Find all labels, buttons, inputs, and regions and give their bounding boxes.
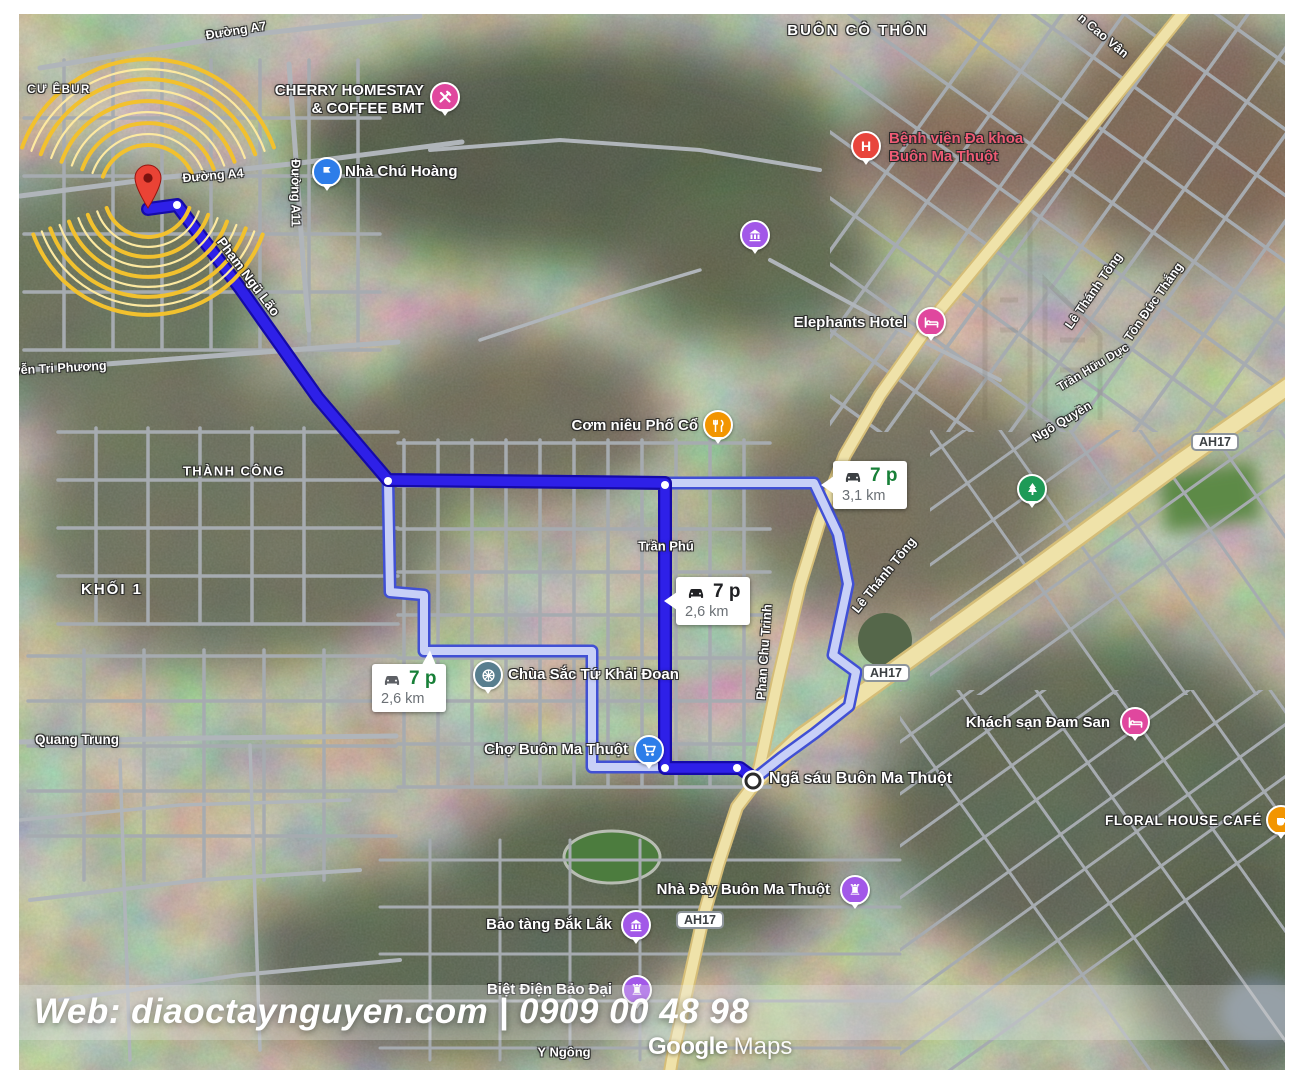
car-icon bbox=[685, 585, 707, 600]
poi-label-elephants-hotel[interactable]: Elephants Hotel bbox=[772, 314, 907, 332]
frame-left bbox=[0, 0, 19, 1084]
bed-icon bbox=[1128, 716, 1143, 729]
bed-icon bbox=[924, 316, 939, 329]
hospital-icon[interactable]: H bbox=[851, 131, 881, 161]
highway-badge-ah17-3: AH17 bbox=[676, 911, 724, 929]
hotel-bed-icon-elephants[interactable] bbox=[916, 307, 946, 337]
homestay-pin-icon[interactable] bbox=[430, 82, 460, 112]
road-label-y-ngong: Y Ngông bbox=[537, 1044, 590, 1059]
tree-icon bbox=[1026, 482, 1039, 496]
road-label-duong-a11: Đường A11 bbox=[288, 159, 303, 227]
market-cart-icon[interactable] bbox=[634, 735, 664, 765]
poi-label-benh-vien[interactable]: Bệnh viện Đa khoa Buôn Ma Thuột bbox=[889, 130, 1023, 165]
park-tree-icon[interactable] bbox=[1017, 474, 1047, 504]
pagoda-wheel-icon[interactable] bbox=[473, 660, 503, 690]
area-label-thanh-cong: THÀNH CÔNG bbox=[183, 463, 285, 478]
poi-label-cho-bmt[interactable]: Chợ Buôn Ma Thuột bbox=[470, 741, 628, 759]
poi-label-nha-day[interactable]: Nhà Đày Buôn Ma Thuột bbox=[630, 881, 830, 899]
poi-label-bao-tang[interactable]: Bảo tàng Đắk Lắk bbox=[452, 916, 612, 934]
car-icon bbox=[381, 672, 403, 687]
museum-icon-baotang[interactable] bbox=[621, 910, 651, 940]
frame-bottom bbox=[0, 1070, 1293, 1084]
route-bubble-center[interactable]: 7 p 2,6 km bbox=[676, 577, 750, 625]
road-label-quang-trung: Quang Trung bbox=[35, 732, 119, 748]
poi-label-nga-sau[interactable]: Ngã sáu Buôn Ma Thuột bbox=[769, 770, 952, 789]
watermark-text: Web: diaoctaynguyen.com | 0909 00 48 98 bbox=[34, 992, 749, 1032]
road-label-tran-phu: Trần Phú bbox=[638, 538, 694, 553]
hotel-bed-icon-damsan[interactable] bbox=[1120, 707, 1150, 737]
dharma-wheel-icon bbox=[481, 668, 496, 683]
poi-label-nha-chu-hoang[interactable]: Nhà Chú Hoàng bbox=[345, 163, 458, 181]
parking-icon[interactable] bbox=[312, 157, 342, 187]
prison-rook-icon[interactable]: ♜ bbox=[840, 875, 870, 905]
nga-sau-junction-dot[interactable] bbox=[745, 773, 762, 790]
route-bubble-left[interactable]: 7 p 2,6 km bbox=[372, 664, 446, 712]
route-bubble-right[interactable]: 7 p 3,1 km bbox=[833, 461, 907, 509]
poi-label-floral-house[interactable]: FLORAL HOUSE CAFÉ bbox=[1082, 813, 1262, 829]
area-label-cu-ebur: CƯ ÊBUR bbox=[27, 84, 90, 98]
bubble-pointer-up bbox=[423, 649, 441, 667]
museum-icon-unlabeled[interactable] bbox=[740, 220, 770, 250]
highway-badge-ah17-2: AH17 bbox=[862, 664, 910, 682]
map-screenshot: CƯ ÊBUR BUÔN CÔ THÔN THÀNH CÔNG KHỐI 1 Đ… bbox=[0, 0, 1293, 1084]
hammer-pick-icon bbox=[438, 90, 452, 104]
google-maps-logo[interactable]: GoogleMaps bbox=[648, 1033, 792, 1061]
poi-label-com-nieu[interactable]: Cơm niêu Phố Cổ bbox=[558, 417, 698, 435]
frame-top bbox=[0, 0, 1293, 14]
flag-icon bbox=[320, 165, 334, 179]
car-icon bbox=[842, 469, 864, 484]
highway-badge-ah17-1: AH17 bbox=[1191, 433, 1239, 451]
bubble-pointer-left bbox=[821, 476, 834, 494]
bubble-pointer-left bbox=[664, 592, 677, 610]
poi-label-dam-san[interactable]: Khách sạn Đam San bbox=[922, 714, 1110, 732]
area-label-buon-co-thon: BUÔN CÔ THÔN bbox=[787, 22, 929, 40]
museum-icon bbox=[748, 228, 762, 242]
restaurant-icon[interactable] bbox=[703, 410, 733, 440]
area-label-khoi-1: KHỐI 1 bbox=[81, 581, 143, 599]
poi-label-chua-sac-tu[interactable]: Chùa Sắc Tứ Khải Đoan bbox=[508, 666, 679, 684]
fork-knife-icon bbox=[712, 419, 725, 432]
poi-label-cherry-homestay[interactable]: CHERRY HOMESTAY & COFFEE BMT bbox=[252, 82, 424, 117]
museum-icon bbox=[629, 918, 643, 932]
shopping-cart-icon bbox=[642, 743, 657, 757]
frame-right bbox=[1285, 0, 1293, 1084]
